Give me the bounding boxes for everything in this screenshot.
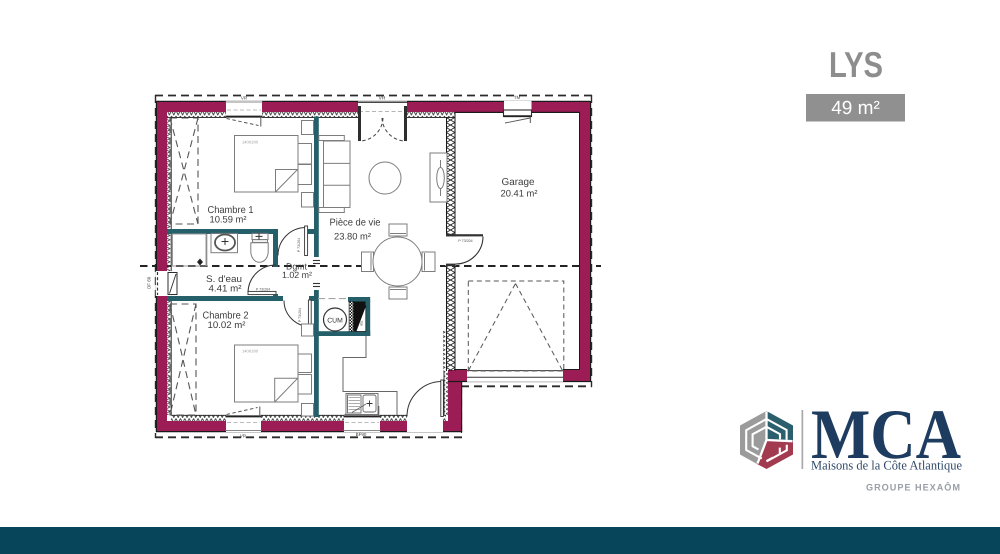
svg-text:OF 60: OF 60 <box>147 276 152 289</box>
svg-text:140X200: 140X200 <box>242 140 259 145</box>
svg-text:LYS: LYS <box>829 44 883 85</box>
svg-text:140X200: 140X200 <box>242 349 259 354</box>
svg-text:Pièce de vie: Pièce de vie <box>330 218 381 229</box>
svg-text:23.80 m²: 23.80 m² <box>334 232 371 243</box>
svg-text:P 73/204: P 73/204 <box>256 288 270 292</box>
svg-text:1.02 m²: 1.02 m² <box>282 270 312 280</box>
svg-text:VR: VR <box>241 96 248 101</box>
svg-text:BF90: BF90 <box>356 432 367 437</box>
svg-text:GROUPE HEXAÔM: GROUPE HEXAÔM <box>866 482 961 494</box>
svg-text:P 73/204: P 73/204 <box>297 238 301 252</box>
svg-text:VR: VR <box>240 434 247 439</box>
svg-text:P 73/204: P 73/204 <box>458 239 472 243</box>
svg-text:P 73/204: P 73/204 <box>298 308 302 322</box>
svg-text:20.41 m²: 20.41 m² <box>501 189 538 200</box>
svg-text:Maisons de la Côte Atlantique: Maisons de la Côte Atlantique <box>811 458 962 473</box>
svg-text:10.02 m²: 10.02 m² <box>208 320 246 331</box>
svg-text:49 m²: 49 m² <box>831 98 880 119</box>
svg-text:VR: VR <box>379 96 386 102</box>
svg-text:4.41 m²: 4.41 m² <box>209 284 242 295</box>
svg-text:Garage: Garage <box>502 177 535 188</box>
svg-text:CUM: CUM <box>327 318 343 325</box>
svg-text:60L: 60L <box>360 320 364 326</box>
svg-text:10.59 m²: 10.59 m² <box>210 215 247 226</box>
svg-text:TM: TM <box>514 95 521 100</box>
